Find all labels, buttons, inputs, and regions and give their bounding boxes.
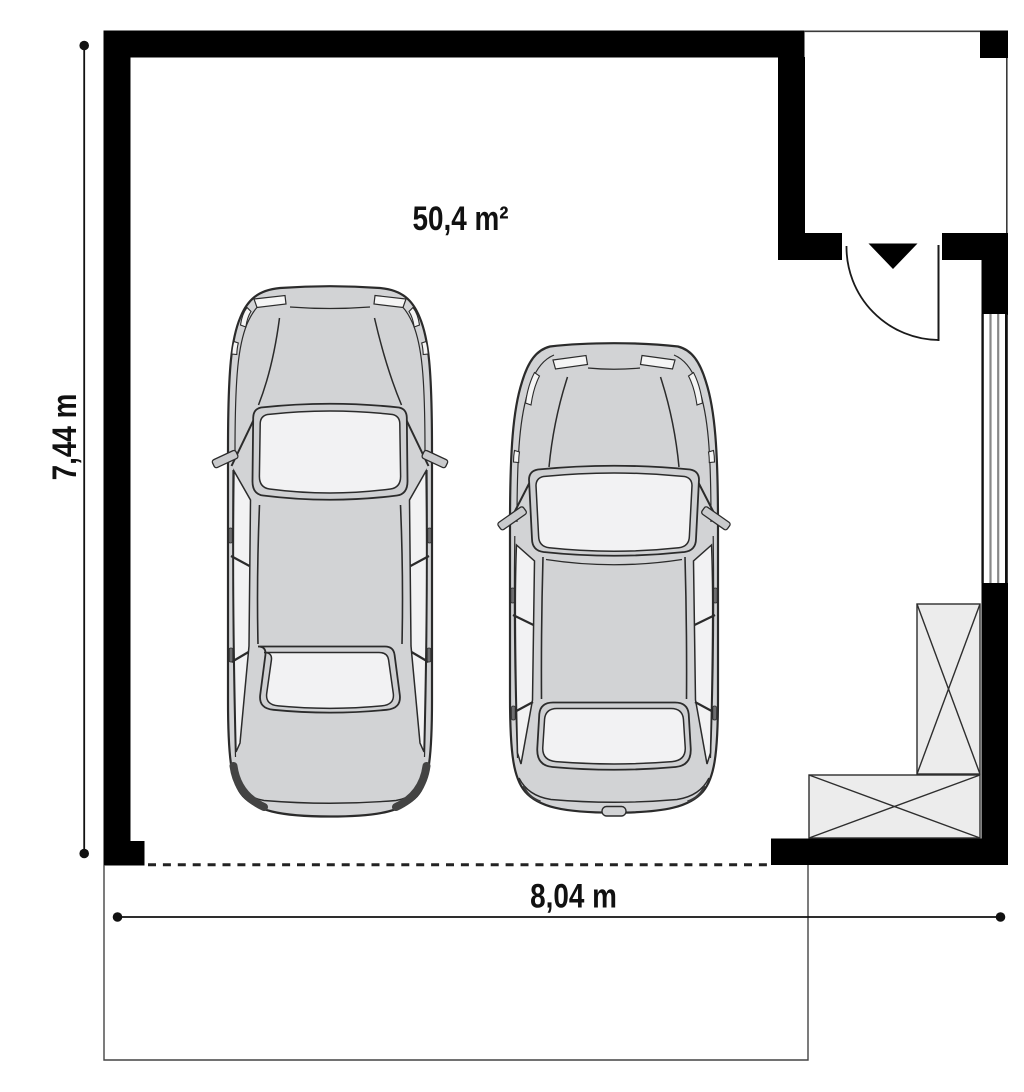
svg-text:8,04 m: 8,04 m bbox=[530, 877, 617, 915]
svg-text:50,4 m²: 50,4 m² bbox=[412, 199, 508, 237]
svg-text:7,44 m: 7,44 m bbox=[45, 394, 83, 481]
